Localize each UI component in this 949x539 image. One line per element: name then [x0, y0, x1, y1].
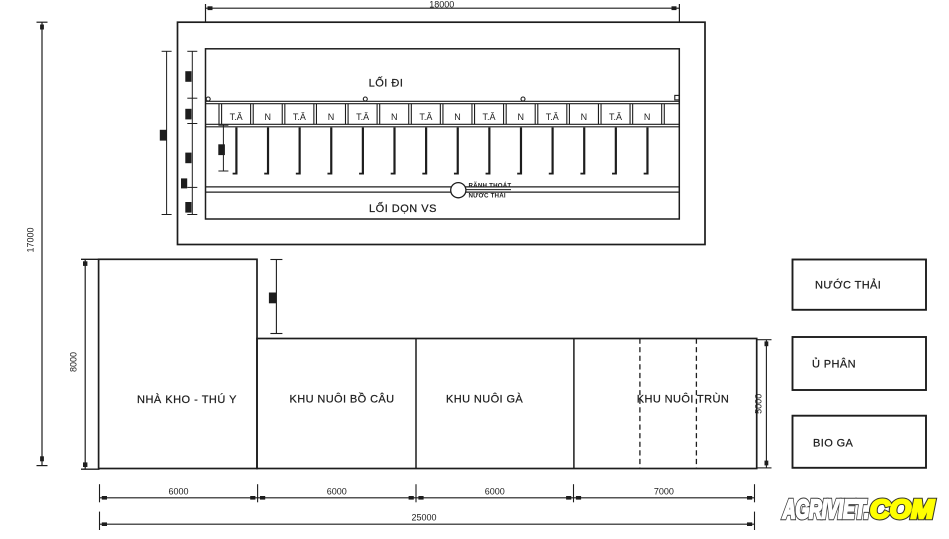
svg-text:BIO GA: BIO GA [813, 437, 854, 449]
svg-text:6000: 6000 [485, 486, 505, 496]
svg-text:NHÀ KHO - THÚ Y: NHÀ KHO - THÚ Y [137, 393, 237, 406]
svg-text:KHU NUÔI BỒ CÂU: KHU NUÔI BỒ CÂU [289, 393, 394, 406]
svg-text:LỐI ĐI: LỐI ĐI [369, 76, 404, 90]
svg-text:NƯỚC THẢI: NƯỚC THẢI [469, 192, 506, 200]
svg-text:NƯỚC THẢI: NƯỚC THẢI [815, 279, 881, 292]
svg-text:KHU NUÔI TRÙN: KHU NUÔI TRÙN [637, 393, 729, 406]
svg-text:COM: COM [870, 496, 935, 524]
svg-text:LỐI DỌN VS: LỐI DỌN VS [369, 201, 437, 215]
svg-text:17000: 17000 [26, 227, 36, 252]
svg-text:T.Ă: T.Ă [293, 112, 306, 122]
svg-text:6000: 6000 [168, 486, 188, 496]
svg-text:T.Ă: T.Ă [546, 112, 559, 122]
svg-text:T.Ă: T.Ă [230, 112, 243, 122]
svg-text:T.Ă: T.Ă [419, 112, 432, 122]
svg-text:N: N [517, 112, 524, 122]
svg-text:25000: 25000 [411, 513, 436, 523]
svg-text:7000: 7000 [654, 486, 674, 496]
svg-text:5000: 5000 [754, 394, 764, 414]
svg-text:KHU NUÔI GÀ: KHU NUÔI GÀ [446, 393, 523, 406]
svg-text:RÃNH THOÁT: RÃNH THOÁT [469, 182, 512, 189]
svg-text:AGRIVIET.: AGRIVIET. [782, 496, 869, 524]
svg-text:T.Ă: T.Ă [483, 112, 496, 122]
svg-text:T.Ă: T.Ă [356, 112, 369, 122]
svg-text:8000: 8000 [69, 352, 79, 372]
svg-text:6000: 6000 [327, 486, 347, 496]
svg-text:18000: 18000 [429, 0, 454, 9]
svg-text:N: N [644, 112, 651, 122]
svg-text:N: N [328, 112, 335, 122]
svg-text:Ủ PHÂN: Ủ PHÂN [812, 358, 856, 371]
svg-text:N: N [264, 112, 271, 122]
svg-text:N: N [391, 112, 398, 122]
svg-text:N: N [454, 112, 461, 122]
svg-text:N: N [581, 112, 588, 122]
svg-text:T.Ă: T.Ă [609, 112, 622, 122]
